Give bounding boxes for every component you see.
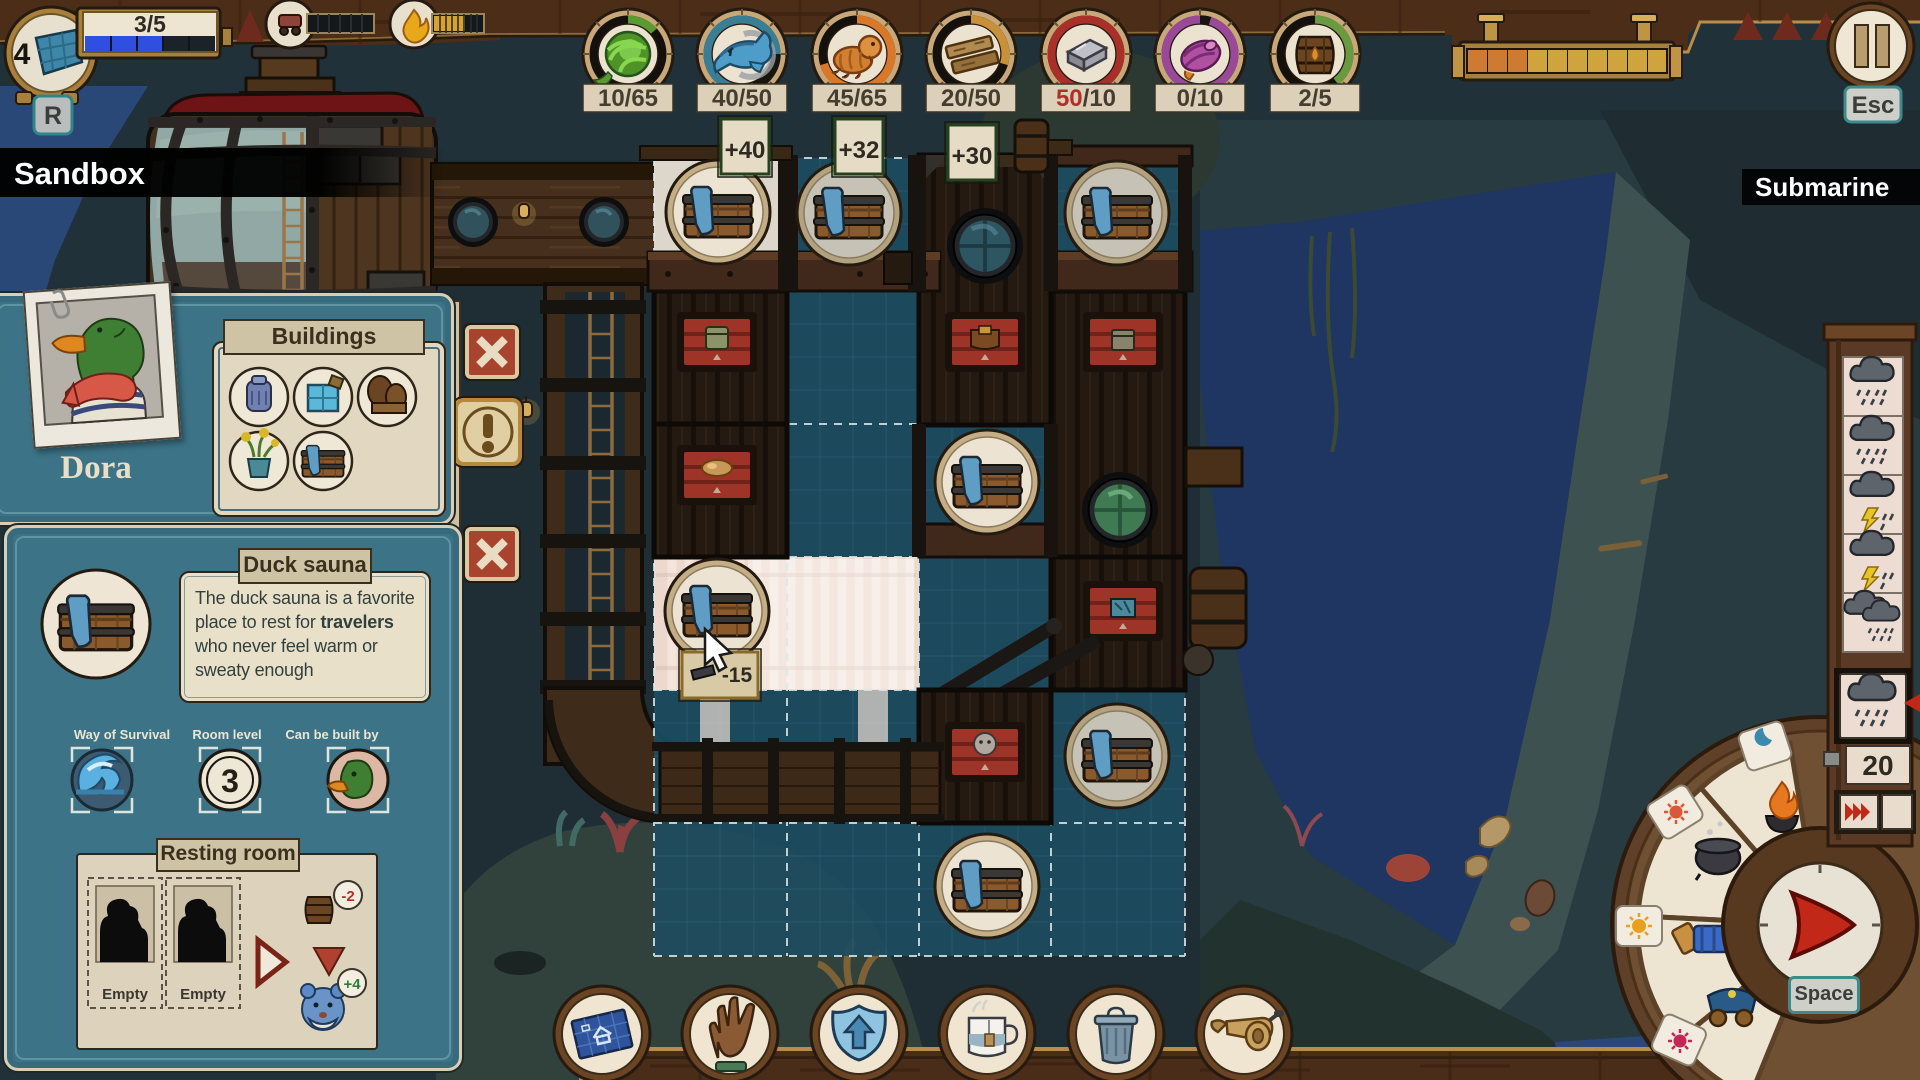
svg-text:45/65: 45/65 (827, 85, 887, 112)
svg-text:-2: -2 (341, 888, 354, 905)
svg-text:10/65: 10/65 (598, 85, 658, 112)
svg-text:+4: +4 (343, 976, 361, 993)
svg-text:40/50: 40/50 (712, 85, 772, 112)
svg-text:3/5: 3/5 (134, 11, 166, 37)
svg-text:50/10: 50/10 (1056, 85, 1116, 112)
svg-text:4: 4 (14, 38, 31, 71)
svg-text:2/5: 2/5 (1298, 85, 1331, 112)
svg-text:0/10: 0/10 (1177, 85, 1224, 112)
svg-text:3: 3 (221, 763, 239, 799)
svg-text:20: 20 (1862, 750, 1893, 781)
svg-text:Esc: Esc (1852, 92, 1895, 119)
svg-text:R: R (44, 102, 62, 130)
svg-text:20/50: 20/50 (941, 85, 1001, 112)
